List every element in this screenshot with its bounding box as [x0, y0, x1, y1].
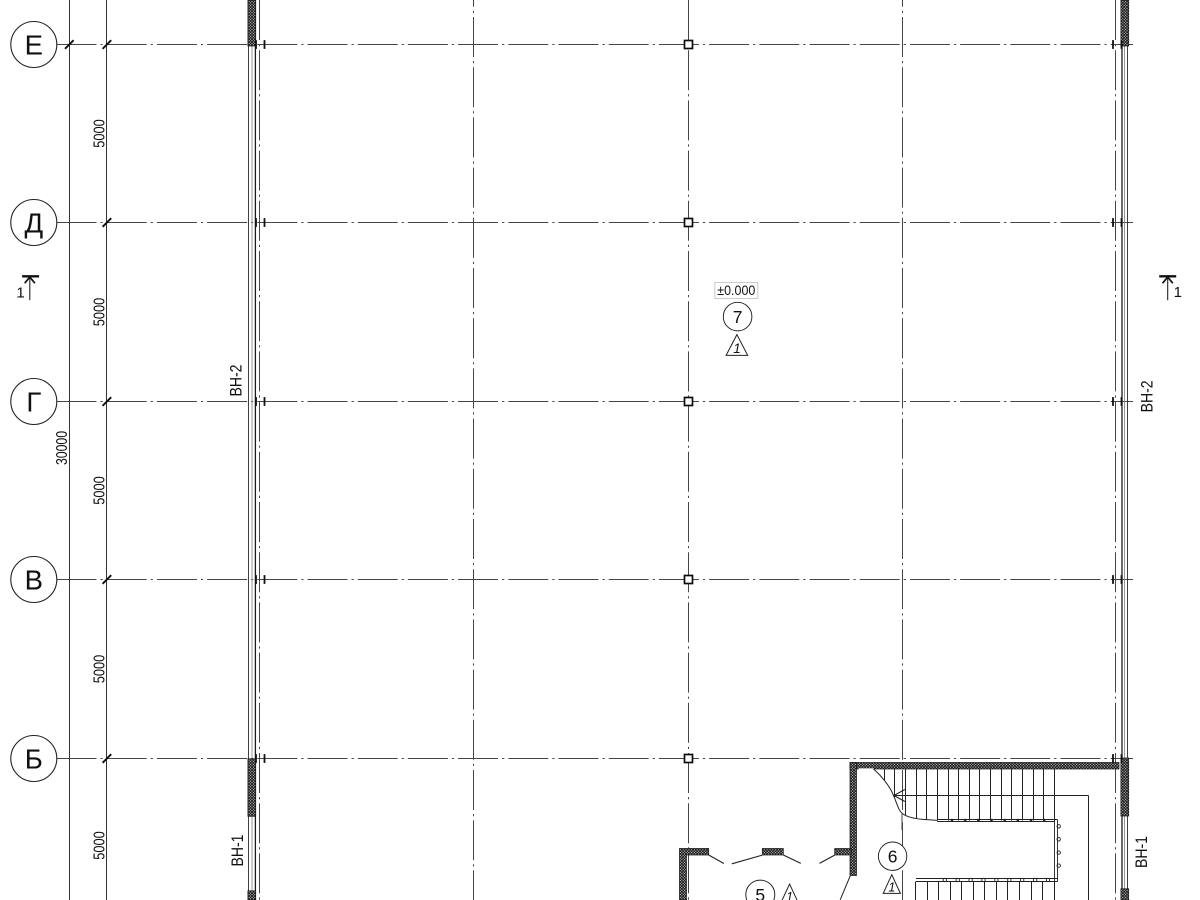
svg-text:6: 6 [888, 847, 898, 867]
svg-text:Б: Б [25, 743, 43, 774]
svg-text:7: 7 [733, 307, 743, 327]
svg-text:30000: 30000 [54, 431, 71, 465]
svg-text:±0.000: ±0.000 [717, 282, 755, 298]
svg-text:Е: Е [25, 29, 43, 60]
svg-text:1: 1 [733, 341, 741, 356]
svg-text:В: В [25, 564, 43, 595]
svg-text:1: 1 [1174, 284, 1182, 301]
svg-text:5000: 5000 [91, 297, 108, 326]
svg-text:5000: 5000 [91, 119, 108, 148]
svg-text:5: 5 [755, 885, 765, 900]
svg-text:5000: 5000 [91, 831, 108, 860]
svg-text:ВН-2: ВН-2 [227, 365, 246, 397]
svg-text:ВН-2: ВН-2 [1138, 380, 1157, 412]
svg-text:Д: Д [24, 207, 43, 238]
svg-text:5000: 5000 [91, 476, 108, 505]
svg-text:1: 1 [16, 284, 24, 301]
svg-text:Г: Г [26, 386, 41, 417]
svg-text:5000: 5000 [91, 654, 108, 683]
svg-text:ВН-1: ВН-1 [1132, 836, 1151, 868]
svg-text:1: 1 [786, 890, 793, 900]
svg-text:ВН-1: ВН-1 [228, 835, 247, 867]
svg-text:1: 1 [888, 880, 895, 894]
